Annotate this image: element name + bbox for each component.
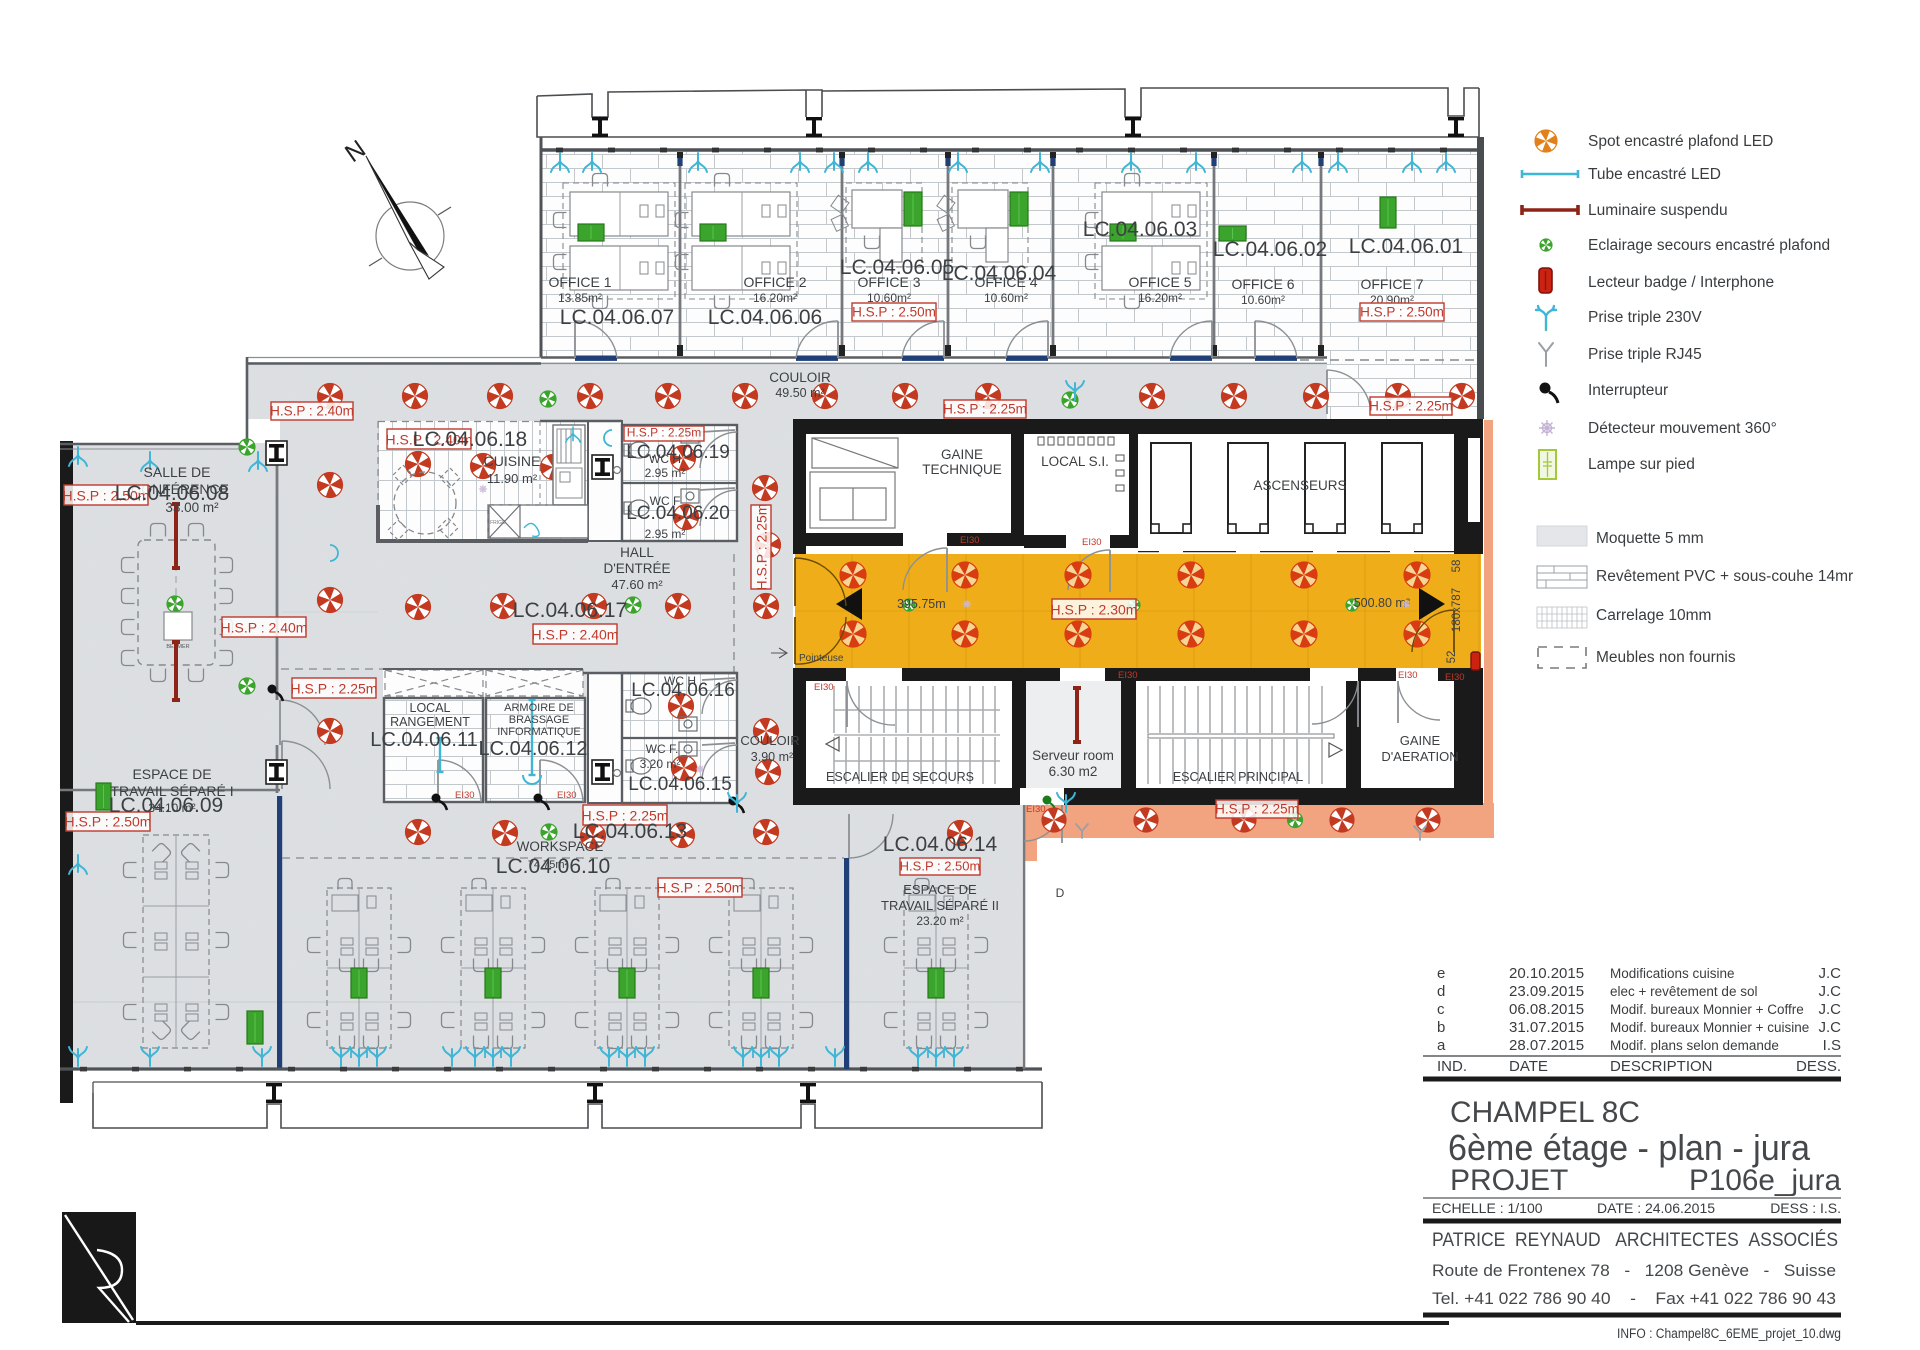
svg-text:EI30: EI30 [814, 682, 834, 693]
svg-text:J.C: J.C [1819, 1001, 1842, 1018]
svg-text:Prise triple RJ45: Prise triple RJ45 [1588, 346, 1702, 363]
svg-text:Spot encastré plafond LED: Spot encastré plafond LED [1588, 133, 1773, 150]
svg-text:6.30 m2: 6.30 m2 [1049, 764, 1098, 779]
svg-text:PROJET: PROJET [1450, 1164, 1568, 1197]
svg-text:LC.04.06.16: LC.04.06.16 [631, 680, 735, 701]
svg-text:H.S.P : 2.40m: H.S.P : 2.40m [532, 627, 619, 643]
svg-text:LC.04.06.05: LC.04.06.05 [840, 256, 954, 279]
svg-text:COULOIR: COULOIR [740, 733, 799, 748]
svg-text:11.90 m²: 11.90 m² [487, 471, 538, 486]
svg-text:LOCAL: LOCAL [410, 701, 451, 715]
svg-text:LC.04.06.11: LC.04.06.11 [370, 729, 478, 751]
svg-text:LC.04.06.12: LC.04.06.12 [479, 738, 588, 760]
svg-text:LC.04.06.07: LC.04.06.07 [560, 306, 674, 329]
svg-text:LC.04.06.04: LC.04.06.04 [942, 262, 1057, 285]
svg-text:PATRICE REYNAUD ARCHITECTES: PATRICE REYNAUD ARCHITECTES ASSOCIÉS [1432, 1228, 1838, 1251]
svg-text:LC.04.06.03: LC.04.06.03 [1083, 218, 1197, 241]
svg-text:H.S.P : 2.25m: H.S.P : 2.25m [943, 402, 1027, 417]
svg-text:Carrelage 10mm: Carrelage 10mm [1596, 607, 1711, 624]
svg-text:D'ENTRÉE: D'ENTRÉE [603, 561, 670, 576]
svg-text:DATE: DATE [1509, 1058, 1548, 1075]
svg-text:INFORMATIQUE: INFORMATIQUE [497, 726, 581, 738]
svg-text:LC.04.06.15: LC.04.06.15 [628, 774, 732, 795]
svg-text:Détecteur mouvement 360°: Détecteur mouvement 360° [1588, 420, 1777, 437]
svg-text:16.20m²: 16.20m² [1138, 291, 1182, 305]
svg-text:LC.04.06.09: LC.04.06.09 [109, 794, 223, 817]
svg-text:OFFICE 1: OFFICE 1 [548, 274, 611, 290]
svg-text:D'AERATION: D'AERATION [1381, 749, 1458, 764]
svg-text:CHAMPEL 8C: CHAMPEL 8C [1450, 1096, 1640, 1129]
svg-text:3.20 m²: 3.20 m² [640, 757, 681, 771]
svg-text:OFFICE 6: OFFICE 6 [1231, 276, 1294, 292]
svg-text:Tube encastré LED: Tube encastré LED [1588, 166, 1721, 183]
svg-text:500.80 m²: 500.80 m² [1354, 596, 1410, 610]
svg-text:Moquette 5 mm: Moquette 5 mm [1596, 530, 1704, 547]
svg-text:3.90 m²: 3.90 m² [751, 750, 793, 764]
svg-text:H.S.P : 2.25m: H.S.P : 2.25m [754, 504, 770, 591]
svg-text:Interrupteur: Interrupteur [1588, 382, 1668, 399]
svg-text:Tel. +41 022 786 90 40 -: Tel. +41 022 786 90 40 - Fax +41 022 786… [1432, 1289, 1836, 1308]
svg-text:10.60m²: 10.60m² [1241, 293, 1285, 307]
svg-text:D: D [1056, 886, 1065, 900]
svg-text:BRASSAGE: BRASSAGE [509, 714, 570, 726]
svg-text:31.07.2015: 31.07.2015 [1509, 1019, 1584, 1036]
svg-text:47.60 m²: 47.60 m² [611, 577, 663, 592]
svg-text:H.S.P : 2.40m: H.S.P : 2.40m [221, 620, 308, 636]
svg-text:H.S.P : 2.25m: H.S.P : 2.25m [1369, 399, 1453, 414]
svg-text:WC H: WC H [649, 452, 681, 466]
svg-text:b: b [1437, 1019, 1445, 1036]
svg-text:Modifications cuisine: Modifications cuisine [1610, 966, 1735, 981]
svg-text:HALL: HALL [620, 545, 654, 560]
svg-text:elec + revêtement de sol: elec + revêtement de sol [1610, 984, 1757, 999]
svg-text:c: c [1437, 1001, 1445, 1018]
svg-text:LC.04.06.06: LC.04.06.06 [708, 306, 822, 329]
svg-text:Pointeuse: Pointeuse [799, 653, 844, 664]
svg-text:COULOIR: COULOIR [769, 370, 831, 385]
svg-text:d: d [1437, 983, 1445, 1000]
svg-text:Revêtement PVC + sous-couhe 14: Revêtement PVC + sous-couhe 14mr [1596, 568, 1853, 585]
svg-text:EI30: EI30 [960, 535, 980, 546]
svg-text:OFFICE 2: OFFICE 2 [743, 274, 806, 290]
svg-text:H.S.P : 2.25m: H.S.P : 2.25m [627, 426, 701, 440]
svg-text:Lecteur badge / Interphone: Lecteur badge / Interphone [1588, 274, 1774, 291]
svg-text:58: 58 [1451, 560, 1463, 573]
svg-text:EI30: EI30 [455, 790, 475, 801]
svg-text:ESCALIER DE SECOURS: ESCALIER DE SECOURS [826, 770, 974, 784]
svg-text:I.S: I.S [1823, 1037, 1841, 1054]
svg-text:ESPACE DE: ESPACE DE [132, 766, 211, 782]
svg-text:LC.04.06.01: LC.04.06.01 [1349, 235, 1463, 258]
svg-text:180x787: 180x787 [1451, 588, 1463, 632]
svg-text:e: e [1437, 965, 1445, 982]
svg-text:Lampe sur pied: Lampe sur pied [1588, 456, 1695, 473]
svg-text:H.S.P : 2.50m: H.S.P : 2.50m [657, 880, 744, 896]
svg-text:GAINE: GAINE [1400, 733, 1441, 748]
svg-text:DESS.: DESS. [1796, 1058, 1841, 1075]
svg-text:74.75m²: 74.75m² [528, 859, 569, 871]
svg-text:DESCRIPTION: DESCRIPTION [1610, 1058, 1713, 1075]
svg-text:ARMOIRE DE: ARMOIRE DE [504, 702, 574, 714]
svg-text:52: 52 [1446, 651, 1458, 664]
svg-text:WC F.: WC F. [646, 742, 679, 756]
svg-text:2.95 m²: 2.95 m² [645, 466, 686, 480]
svg-text:OFFICE 7: OFFICE 7 [1360, 276, 1423, 292]
svg-text:LOCAL S.I.: LOCAL S.I. [1041, 454, 1109, 469]
svg-text:Modif. bureaux Monnier + Coffr: Modif. bureaux Monnier + Coffre [1610, 1002, 1804, 1017]
svg-text:EI30: EI30 [1026, 804, 1046, 815]
svg-text:BEAMER: BEAMER [166, 644, 189, 650]
svg-text:33.00 m²: 33.00 m² [165, 500, 219, 515]
svg-text:J.C: J.C [1819, 1019, 1842, 1036]
svg-text:J.C: J.C [1819, 965, 1842, 982]
svg-text:ESCALIER PRINCIPAL: ESCALIER PRINCIPAL [1173, 770, 1303, 784]
svg-text:LC.04.06.17: LC.04.06.17 [513, 599, 627, 622]
svg-text:a: a [1437, 1037, 1446, 1054]
svg-text:RANGEMENT: RANGEMENT [390, 715, 470, 729]
svg-text:DATE : 24.06.2015: DATE : 24.06.2015 [1597, 1200, 1715, 1216]
svg-text:H.S.P : 2.30m: H.S.P : 2.30m [1051, 602, 1138, 618]
svg-text:ESPACE DE: ESPACE DE [903, 882, 977, 897]
svg-text:SALLE DE: SALLE DE [144, 464, 211, 480]
svg-text:IND.: IND. [1437, 1058, 1467, 1075]
svg-text:EI30: EI30 [1118, 670, 1138, 681]
svg-text:10.60m²: 10.60m² [984, 291, 1028, 305]
svg-text:Meubles non fournis: Meubles non fournis [1596, 649, 1736, 666]
svg-text:2.95 m²: 2.95 m² [645, 527, 686, 541]
svg-text:395.75m: 395.75m [897, 597, 946, 611]
svg-text:23.09.2015: 23.09.2015 [1509, 983, 1584, 1000]
svg-text:H.S.P : 2.50m: H.S.P : 2.50m [900, 859, 981, 874]
svg-text:LC.04.06.18: LC.04.06.18 [413, 428, 527, 451]
svg-text:Modif. plans selon demande: Modif. plans selon demande [1610, 1038, 1779, 1053]
svg-text:EI30: EI30 [1445, 672, 1465, 683]
svg-text:DESS : I.S.: DESS : I.S. [1770, 1200, 1841, 1216]
svg-text:Prise triple 230V: Prise triple 230V [1588, 309, 1702, 326]
svg-text:H.S.P : 2.40m: H.S.P : 2.40m [270, 404, 354, 419]
svg-text:49.50 m²: 49.50 m² [775, 386, 824, 400]
svg-text:CUISINE: CUISINE [484, 453, 541, 469]
svg-text:EI30: EI30 [557, 790, 577, 801]
svg-text:WC F: WC F [650, 494, 681, 508]
svg-text:H.S.P : 2.25m: H.S.P : 2.25m [291, 681, 378, 697]
svg-text:FRIGO: FRIGO [490, 520, 506, 526]
svg-text:16.20m²: 16.20m² [753, 291, 797, 305]
svg-text:TECHNIQUE: TECHNIQUE [922, 462, 1002, 477]
svg-text:J.C: J.C [1819, 983, 1842, 1000]
svg-text:LC.04.06.14: LC.04.06.14 [883, 833, 998, 856]
svg-text:Eclairage secours encastré pla: Eclairage secours encastré plafond [1588, 237, 1830, 254]
svg-text:INFO : Champel8C_6EME_projet_1: INFO : Champel8C_6EME_projet_10.dwg [1617, 1326, 1841, 1341]
svg-text:OFFICE 5: OFFICE 5 [1128, 274, 1191, 290]
svg-text:Modif. bureaux Monnier + cuisi: Modif. bureaux Monnier + cuisine [1610, 1020, 1809, 1035]
svg-text:06.08.2015: 06.08.2015 [1509, 1001, 1584, 1018]
svg-text:TRAVAIL SÉPARÉ II: TRAVAIL SÉPARÉ II [881, 898, 999, 913]
svg-text:LC.04.06.02: LC.04.06.02 [1213, 238, 1327, 261]
svg-text:Luminaire suspendu: Luminaire suspendu [1588, 202, 1728, 219]
svg-text:6ème étage - plan - jura: 6ème étage - plan - jura [1448, 1127, 1811, 1168]
svg-text:H.S.P : 2.50m: H.S.P : 2.50m [1360, 305, 1444, 320]
svg-text:EI30: EI30 [1398, 670, 1418, 681]
svg-text:EI30: EI30 [1082, 537, 1102, 548]
svg-text:ECHELLE : 1/100: ECHELLE : 1/100 [1432, 1200, 1543, 1216]
svg-text:ASCENSEURS: ASCENSEURS [1253, 478, 1346, 493]
svg-text:H.S.P : 2.25m: H.S.P : 2.25m [1215, 802, 1299, 817]
svg-text:13.85m²: 13.85m² [558, 291, 602, 305]
svg-text:Serveur room: Serveur room [1032, 748, 1114, 763]
svg-text:WORKSPACE: WORKSPACE [517, 839, 604, 854]
svg-text:P106e_jura: P106e_jura [1689, 1164, 1841, 1197]
svg-text:20.10.2015: 20.10.2015 [1509, 965, 1584, 982]
svg-text:H.S.P : 2.50m: H.S.P : 2.50m [852, 305, 936, 320]
svg-text:28.07.2015: 28.07.2015 [1509, 1037, 1584, 1054]
svg-text:Route de Frontenex 78 - 12: Route de Frontenex 78 - 1208 Genève - Su… [1432, 1261, 1836, 1280]
svg-text:23.20 m²: 23.20 m² [916, 914, 963, 928]
svg-text:GAINE: GAINE [941, 447, 983, 462]
